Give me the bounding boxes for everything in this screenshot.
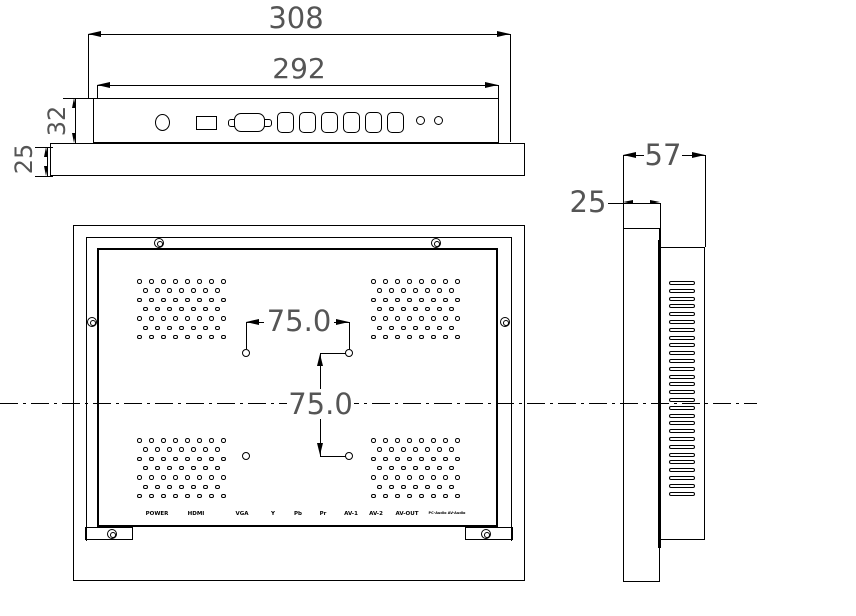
vent-hole: [167, 485, 172, 490]
dim-vesa-h-arrow-right: [336, 319, 349, 325]
dim-57-arrow-left: [623, 152, 636, 158]
drawing-canvas: 308 292 32 25: [0, 0, 856, 616]
vent-hole: [371, 438, 376, 443]
vent-hole: [137, 475, 142, 480]
vent-hole: [221, 494, 226, 499]
screw-side-right: [500, 317, 510, 327]
vent-hole: [437, 288, 442, 293]
vent-hole: [209, 298, 214, 303]
vent-hole: [419, 438, 424, 443]
round-connector: [387, 112, 404, 133]
vent-slot: [669, 453, 695, 457]
vent-hole: [455, 475, 460, 480]
vent-slot: [669, 460, 695, 464]
vent-slot: [669, 429, 695, 433]
vent-hole: [191, 288, 196, 293]
vent-hole: [383, 475, 388, 480]
dim-292-arrow-right: [485, 82, 498, 88]
vent-hole: [173, 438, 178, 443]
vent-hole: [203, 326, 208, 331]
vent-hole: [389, 485, 394, 490]
vent-hole: [371, 316, 376, 321]
vent-grid-bottom-left: [137, 438, 229, 500]
audio-jack: [416, 116, 425, 125]
vent-hole: [425, 466, 430, 471]
vent-hole: [437, 307, 442, 312]
dim-292-ext-right: [498, 85, 499, 100]
vent-hole: [185, 316, 190, 321]
vent-hole: [185, 494, 190, 499]
dim-32-text: 32: [40, 104, 74, 138]
vent-hole: [413, 307, 418, 312]
vent-hole: [167, 466, 172, 471]
vent-grid-top-left: [137, 279, 229, 341]
port-label: VGA: [235, 511, 248, 517]
vent-hole: [431, 457, 436, 462]
vent-hole: [401, 326, 406, 331]
dim-308-arrow-left: [88, 31, 101, 37]
vent-slot: [669, 398, 695, 402]
vent-hole: [401, 485, 406, 490]
vent-hole: [443, 457, 448, 462]
vent-hole: [173, 494, 178, 499]
vent-hole: [407, 335, 412, 340]
vent-hole: [137, 298, 142, 303]
horizontal-centerline: [0, 403, 757, 404]
vent-hole: [197, 335, 202, 340]
port-label: AV-OUT: [396, 511, 419, 517]
vent-hole: [401, 447, 406, 452]
side-panel-divider: [658, 240, 661, 548]
vent-hole: [179, 307, 184, 312]
vent-hole: [161, 494, 166, 499]
vent-hole: [431, 438, 436, 443]
vent-hole: [407, 438, 412, 443]
vent-hole: [443, 438, 448, 443]
vent-hole: [383, 298, 388, 303]
vent-hole: [449, 447, 454, 452]
vent-hole: [395, 316, 400, 321]
vent-grid-top-right: [371, 279, 463, 341]
vent-hole: [419, 279, 424, 284]
vent-hole: [161, 279, 166, 284]
vent-hole: [143, 326, 148, 331]
vent-hole: [383, 494, 388, 499]
vent-hole: [455, 494, 460, 499]
vent-hole: [449, 307, 454, 312]
vent-slot: [669, 336, 695, 340]
vent-hole: [401, 466, 406, 471]
vesa-hole-bottom-left: [242, 452, 250, 460]
dim-25L-ext-bottom: [35, 176, 53, 177]
vent-hole: [161, 438, 166, 443]
vent-hole: [179, 326, 184, 331]
vent-hole: [395, 457, 400, 462]
vent-hole: [185, 438, 190, 443]
vent-hole: [383, 316, 388, 321]
vent-hole: [143, 447, 148, 452]
dim-vesa-h-ext-left: [246, 322, 247, 349]
screw-top-left: [154, 238, 164, 248]
vent-slot: [669, 476, 695, 480]
vent-hole: [191, 466, 196, 471]
vent-slot: [669, 297, 695, 301]
vent-hole: [371, 298, 376, 303]
vent-hole: [173, 279, 178, 284]
vent-slot: [669, 492, 695, 496]
dim-vesa-v-arrow-down: [317, 443, 323, 455]
vent-hole: [455, 438, 460, 443]
vent-hole: [221, 475, 226, 480]
vent-hole: [443, 279, 448, 284]
vent-hole: [221, 316, 226, 321]
vent-hole: [431, 335, 436, 340]
vent-hole: [179, 485, 184, 490]
vent-hole: [173, 335, 178, 340]
vent-hole: [209, 335, 214, 340]
vent-hole: [197, 279, 202, 284]
round-connector: [299, 112, 316, 133]
vesa-hole-bottom-right: [345, 452, 353, 460]
vent-hole: [137, 335, 142, 340]
vent-hole: [161, 475, 166, 480]
vent-hole: [155, 288, 160, 293]
vent-hole: [149, 335, 154, 340]
vent-hole: [167, 326, 172, 331]
vent-slot: [669, 367, 695, 371]
vent-hole: [413, 326, 418, 331]
vent-hole: [221, 438, 226, 443]
vent-hole: [197, 494, 202, 499]
hdmi-port: [196, 116, 217, 130]
vent-hole: [215, 288, 220, 293]
vent-hole: [383, 457, 388, 462]
vent-hole: [383, 438, 388, 443]
vent-slot: [669, 468, 695, 472]
port-label: AV-2: [369, 511, 383, 517]
vent-hole: [413, 466, 418, 471]
vent-hole: [215, 307, 220, 312]
vent-hole: [137, 279, 142, 284]
vent-hole: [377, 288, 382, 293]
power-jack: [155, 114, 170, 131]
vent-hole: [149, 279, 154, 284]
vent-hole: [179, 447, 184, 452]
vent-hole: [185, 335, 190, 340]
vent-hole: [167, 307, 172, 312]
vent-hole: [407, 494, 412, 499]
dim-25S-arrow-right: [650, 200, 660, 204]
vent-slot: [669, 484, 695, 488]
vent-hole: [149, 457, 154, 462]
vent-hole: [173, 316, 178, 321]
vent-hole: [377, 447, 382, 452]
dim-292-arrow-left: [97, 82, 110, 88]
vent-hole: [419, 316, 424, 321]
vent-slot: [669, 343, 695, 347]
vent-hole: [209, 316, 214, 321]
vent-hole: [203, 485, 208, 490]
vent-hole: [371, 457, 376, 462]
vent-hole: [389, 447, 394, 452]
vent-hole: [221, 279, 226, 284]
vent-hole: [185, 457, 190, 462]
vent-hole: [209, 457, 214, 462]
dim-308-ext-right: [510, 34, 511, 142]
vent-hole: [449, 288, 454, 293]
vent-slot: [669, 304, 695, 308]
side-front-bezel: [623, 228, 660, 582]
vent-hole: [407, 298, 412, 303]
vent-hole: [137, 316, 142, 321]
vent-hole: [149, 475, 154, 480]
vent-hole: [389, 307, 394, 312]
dim-32-ext-top: [63, 98, 93, 99]
vent-slot: [669, 390, 695, 394]
port-label: HDMI: [188, 511, 205, 517]
vent-hole: [443, 475, 448, 480]
dim-57-ext-left: [623, 155, 624, 228]
vent-hole: [203, 447, 208, 452]
vent-hole: [197, 475, 202, 480]
vent-slot: [669, 281, 695, 285]
vent-hole: [455, 316, 460, 321]
round-connector: [321, 112, 338, 133]
vent-hole: [431, 298, 436, 303]
round-connector: [343, 112, 360, 133]
vent-hole: [455, 457, 460, 462]
vent-hole: [377, 307, 382, 312]
vent-hole: [155, 485, 160, 490]
top-view-base: [50, 143, 525, 176]
vesa-hole-top-left: [242, 349, 250, 357]
vent-hole: [197, 316, 202, 321]
vent-hole: [449, 466, 454, 471]
vent-hole: [149, 316, 154, 321]
vga-port-body: [234, 113, 265, 132]
vent-hole: [449, 326, 454, 331]
round-connector: [277, 112, 294, 133]
dim-25L-arrow-bottom: [44, 166, 48, 176]
vent-hole: [215, 447, 220, 452]
vent-hole: [437, 447, 442, 452]
vent-hole: [425, 326, 430, 331]
dim-vesa-h-text: 75.0: [264, 306, 334, 337]
vent-hole: [371, 335, 376, 340]
vent-hole: [407, 475, 412, 480]
vent-hole: [401, 288, 406, 293]
vent-hole: [185, 298, 190, 303]
vent-hole: [209, 494, 214, 499]
dim-25L-text: 25: [8, 143, 40, 175]
vent-hole: [395, 475, 400, 480]
dim-57-text: 57: [644, 140, 682, 170]
vent-slot: [669, 328, 695, 332]
vent-hole: [437, 466, 442, 471]
dim-292-line: [97, 85, 498, 86]
dim-25S-text: 25: [566, 187, 610, 217]
vent-hole: [437, 326, 442, 331]
vent-hole: [371, 279, 376, 284]
vent-hole: [173, 298, 178, 303]
vent-hole: [137, 438, 142, 443]
vent-hole: [173, 457, 178, 462]
vent-hole: [455, 298, 460, 303]
dim-25S-ext-right: [660, 203, 661, 240]
vent-hole: [155, 447, 160, 452]
vesa-hole-top-right: [345, 349, 353, 357]
vent-slot: [669, 351, 695, 355]
port-label: Y: [271, 511, 275, 517]
vent-hole: [149, 438, 154, 443]
screw-side-left: [87, 317, 97, 327]
vent-hole: [413, 447, 418, 452]
vent-hole: [377, 485, 382, 490]
dim-25S-arrow-left: [623, 200, 633, 204]
vent-hole: [209, 279, 214, 284]
vent-hole: [137, 457, 142, 462]
audio-jack: [434, 116, 443, 125]
vent-hole: [425, 447, 430, 452]
vent-hole: [443, 316, 448, 321]
vent-hole: [395, 438, 400, 443]
dim-vesa-h-ext-right: [349, 322, 350, 349]
vent-hole: [377, 326, 382, 331]
vent-hole: [455, 335, 460, 340]
vent-slot: [669, 289, 695, 293]
vent-hole: [389, 326, 394, 331]
vent-hole: [197, 457, 202, 462]
vent-hole: [137, 494, 142, 499]
vent-hole: [155, 466, 160, 471]
vent-hole: [185, 475, 190, 480]
vent-slot: [669, 312, 695, 316]
vent-slot: [669, 320, 695, 324]
port-label: AV-1: [344, 511, 358, 517]
vent-slot: [669, 406, 695, 410]
vent-hole: [179, 466, 184, 471]
vent-hole: [413, 485, 418, 490]
dim-57-ext-right: [705, 155, 706, 247]
vent-hole: [197, 438, 202, 443]
vent-hole: [419, 457, 424, 462]
vent-slot: [669, 375, 695, 379]
vent-hole: [431, 316, 436, 321]
vent-hole: [389, 466, 394, 471]
vent-hole: [419, 335, 424, 340]
vent-hole: [431, 494, 436, 499]
vent-slot: [669, 414, 695, 418]
vent-hole: [173, 475, 178, 480]
dim-308-arrow-right: [497, 31, 510, 37]
vent-hole: [191, 485, 196, 490]
vent-hole: [425, 288, 430, 293]
vent-hole: [413, 288, 418, 293]
dim-308-text: 308: [252, 3, 340, 33]
vent-hole: [407, 457, 412, 462]
vent-hole: [197, 298, 202, 303]
vent-hole: [161, 457, 166, 462]
dim-25L-arrow-top: [44, 147, 48, 157]
vent-hole: [215, 485, 220, 490]
vent-hole: [203, 466, 208, 471]
vent-hole: [155, 326, 160, 331]
vent-hole: [215, 326, 220, 331]
vent-slot: [669, 382, 695, 386]
vent-hole: [221, 298, 226, 303]
dim-308-ext-left: [88, 34, 89, 98]
vent-hole: [371, 494, 376, 499]
vent-hole: [401, 307, 406, 312]
vent-hole: [443, 494, 448, 499]
vent-hole: [431, 475, 436, 480]
vent-hole: [443, 335, 448, 340]
vent-hole: [143, 288, 148, 293]
vent-hole: [395, 279, 400, 284]
dim-292-text: 292: [255, 54, 343, 84]
vent-hole: [371, 475, 376, 480]
vent-slot: [669, 359, 695, 363]
vent-hole: [377, 466, 382, 471]
vent-hole: [167, 288, 172, 293]
round-connector: [365, 112, 382, 133]
vent-hole: [179, 288, 184, 293]
dim-57-arrow-right: [692, 152, 705, 158]
vent-hole: [395, 335, 400, 340]
vent-hole: [167, 447, 172, 452]
vent-hole: [455, 279, 460, 284]
vent-hole: [221, 335, 226, 340]
vent-hole: [407, 316, 412, 321]
vent-hole: [185, 279, 190, 284]
vent-hole: [395, 494, 400, 499]
dim-vesa-v-text: 75.0: [287, 389, 354, 419]
screw-top-right: [431, 238, 441, 248]
vent-hole: [383, 279, 388, 284]
vent-hole: [143, 485, 148, 490]
vent-hole: [203, 307, 208, 312]
vent-hole: [155, 307, 160, 312]
vent-hole: [161, 316, 166, 321]
vent-hole: [215, 466, 220, 471]
vent-slot: [669, 437, 695, 441]
vent-hole: [191, 326, 196, 331]
port-label: Pr: [320, 511, 327, 517]
vent-hole: [443, 298, 448, 303]
vent-hole: [425, 307, 430, 312]
vent-hole: [437, 485, 442, 490]
vent-hole: [389, 288, 394, 293]
vent-hole: [203, 288, 208, 293]
dim-vesa-h-arrow-left: [246, 319, 259, 325]
vent-hole: [143, 307, 148, 312]
port-label: Pb: [294, 511, 302, 517]
vent-hole: [161, 298, 166, 303]
vent-hole: [431, 279, 436, 284]
vent-hole: [395, 298, 400, 303]
vent-hole: [425, 485, 430, 490]
vent-hole: [209, 438, 214, 443]
screw-tab-left: [107, 529, 117, 539]
vent-grid-bottom-right: [371, 438, 463, 500]
vent-hole: [191, 307, 196, 312]
vent-hole: [383, 335, 388, 340]
dim-vesa-v-arrow-up: [317, 354, 323, 366]
vent-hole: [419, 298, 424, 303]
vent-hole: [161, 335, 166, 340]
vent-hole: [419, 475, 424, 480]
vent-hole: [419, 494, 424, 499]
